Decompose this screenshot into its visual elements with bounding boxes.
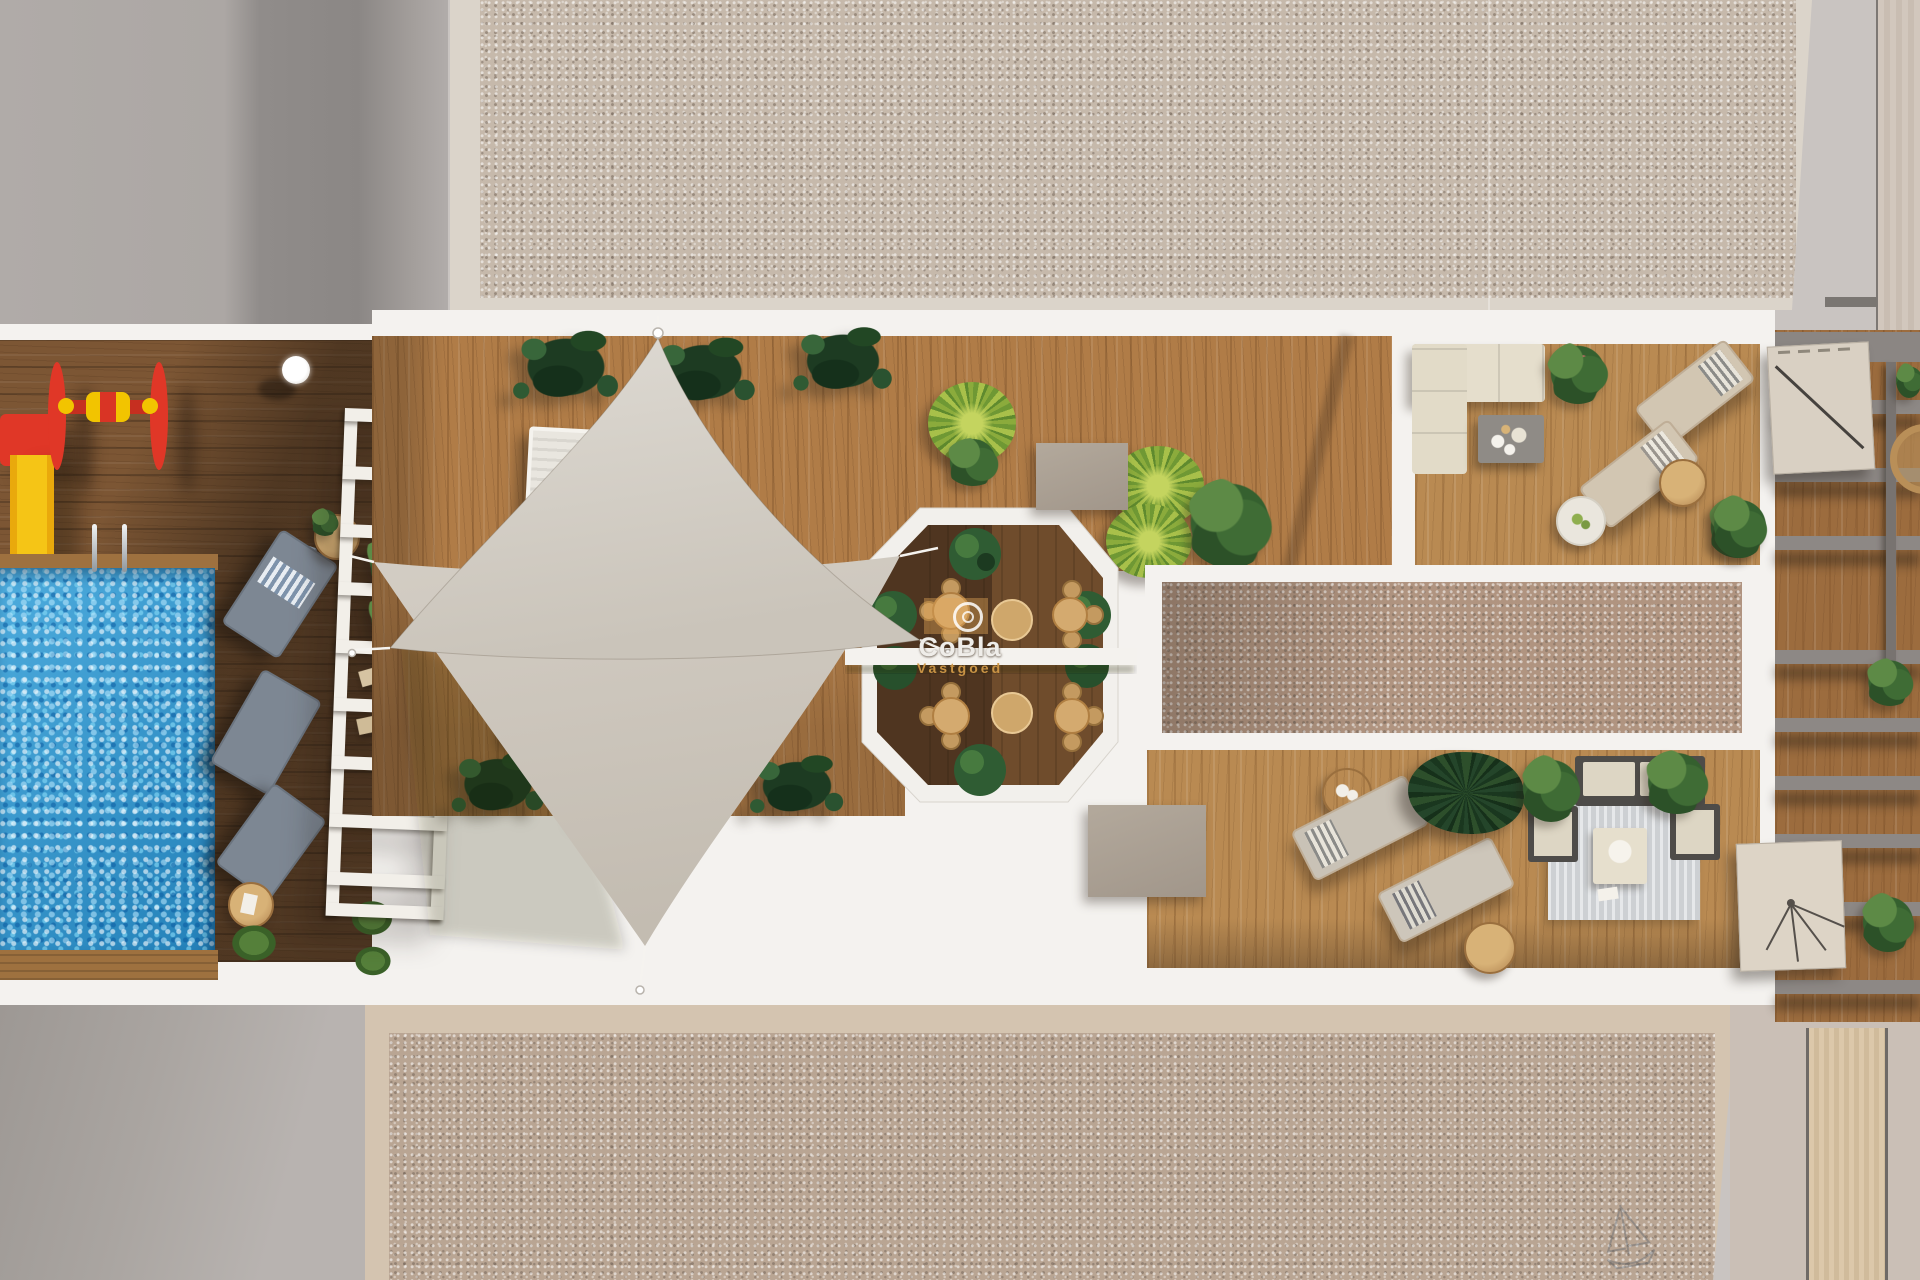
shrub [1896,362,1920,398]
sofa-arm [1412,344,1467,474]
path-bottom-left [0,1005,372,1280]
shrub [1864,658,1916,706]
swimming-pool [0,568,215,954]
lounger-towel [1304,819,1349,868]
skylight-shading [1162,582,1742,733]
pool-ladder [88,524,132,574]
pergola-beam [1775,718,1920,732]
sofa-cushion [1583,762,1635,796]
shrub [1860,892,1916,952]
chair-cushion [1676,810,1714,854]
spiral-logo-icon [953,602,983,632]
watermark-brand: CoBla [900,632,1020,663]
lounger-towel [1392,880,1437,929]
spinner-knob-left [58,398,74,414]
sail-upper [390,338,920,659]
roof-top-left-concrete [0,0,448,332]
stair-step [1838,347,1850,351]
spiral-logo-core [962,611,974,623]
pergola-beam [1775,776,1920,790]
spinner-disc-right [150,362,168,470]
watermark-subtitle: Vastgoed [900,660,1020,676]
roof-top-gravel-border [450,0,1812,310]
ladder-rail [92,524,97,572]
roof-bottom-gravel-border [365,1005,1737,1280]
roof-bottom-gravel [389,1033,1715,1280]
pergola-post [1886,362,1896,662]
spinner-knob-right [142,398,158,414]
stair-rod [1775,365,1865,449]
side-table [1659,459,1707,507]
alley-wood-strip [1806,1028,1888,1280]
pergola-beam [1775,980,1920,994]
spiral-stairwell-roof [1736,840,1846,972]
roof-seam [1488,0,1490,310]
flowering-shrub [1546,342,1610,404]
spinner-disc-left [48,362,66,470]
watermark-logo [924,598,988,634]
ladder-rail [122,524,127,572]
lounger-towel [1698,349,1743,396]
stair-spoke [1766,904,1792,951]
neighbor-facade-strip [1876,0,1920,333]
lounge-coffee-table [1593,828,1647,884]
lounger-towel [257,556,315,608]
grass-tuft [228,922,280,964]
outdoor-lounge-set [1520,748,1720,928]
side-table [1464,922,1516,974]
stair-step [1798,349,1810,353]
coffee-table [1478,415,1544,463]
side-table-white [1556,496,1606,546]
shrub [1184,478,1276,568]
stair-step [1778,351,1790,355]
stairwell-roof [1767,341,1876,474]
pergola-beam [1775,536,1920,550]
spinner-roller [86,392,130,422]
rooftop-aerial-render: CoBla Vastgoed [0,0,1920,1280]
shrub [1520,754,1582,822]
shrub [1712,494,1768,558]
roof-access-block [1088,805,1206,897]
sailboat-icon [1596,1196,1660,1280]
watermark: CoBla Vastgoed [900,598,1060,688]
shrub [1642,750,1712,814]
roof-vent-bar [1825,297,1877,307]
floor-lamp [282,356,310,384]
pool-rim-bottom [0,950,218,980]
roof-access-block [1036,443,1128,510]
stair-step [1818,348,1830,352]
magazine [240,893,258,915]
roof-top-gravel [480,0,1796,298]
